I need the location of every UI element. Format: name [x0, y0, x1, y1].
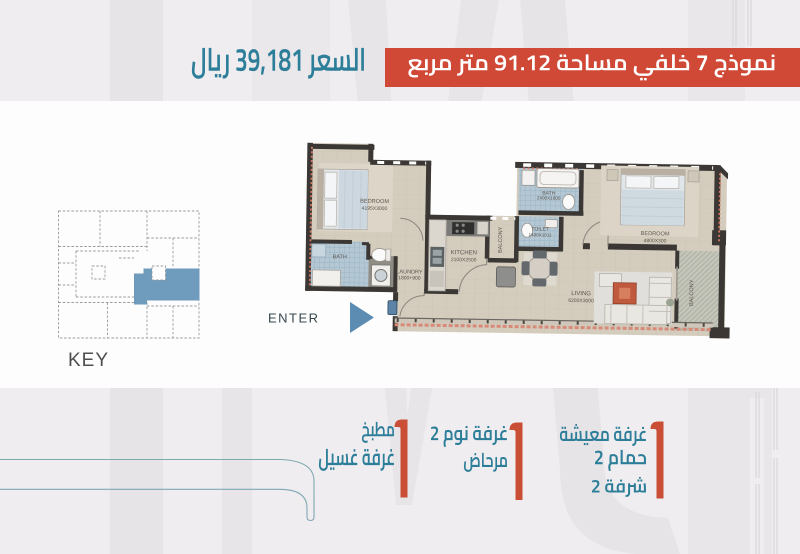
svg-text:6200X3000: 6200X3000: [568, 298, 594, 304]
svg-text:2400X1800: 2400X1800: [537, 195, 561, 200]
svg-text:4195X3000: 4195X3000: [362, 206, 388, 212]
svg-text:2100X2500: 2100X2500: [451, 257, 477, 263]
svg-text:BALCONY: BALCONY: [498, 226, 504, 253]
svg-text:4800X300: 4800X300: [644, 238, 667, 244]
svg-text:ENTER: ENTER: [268, 311, 320, 326]
svg-text:1800+900: 1800+900: [398, 275, 421, 281]
svg-text:BALCONY: BALCONY: [689, 279, 695, 306]
svg-text:1400X1011: 1400X1011: [528, 232, 552, 237]
svg-text:BATH: BATH: [333, 254, 347, 260]
svg-text:BEDROOM: BEDROOM: [360, 199, 389, 205]
svg-text:LIVING: LIVING: [571, 291, 591, 297]
svg-text:KEY: KEY: [68, 350, 109, 371]
svg-text:BEDROOM: BEDROOM: [641, 231, 670, 237]
svg-text:KITCHEN: KITCHEN: [451, 250, 477, 256]
